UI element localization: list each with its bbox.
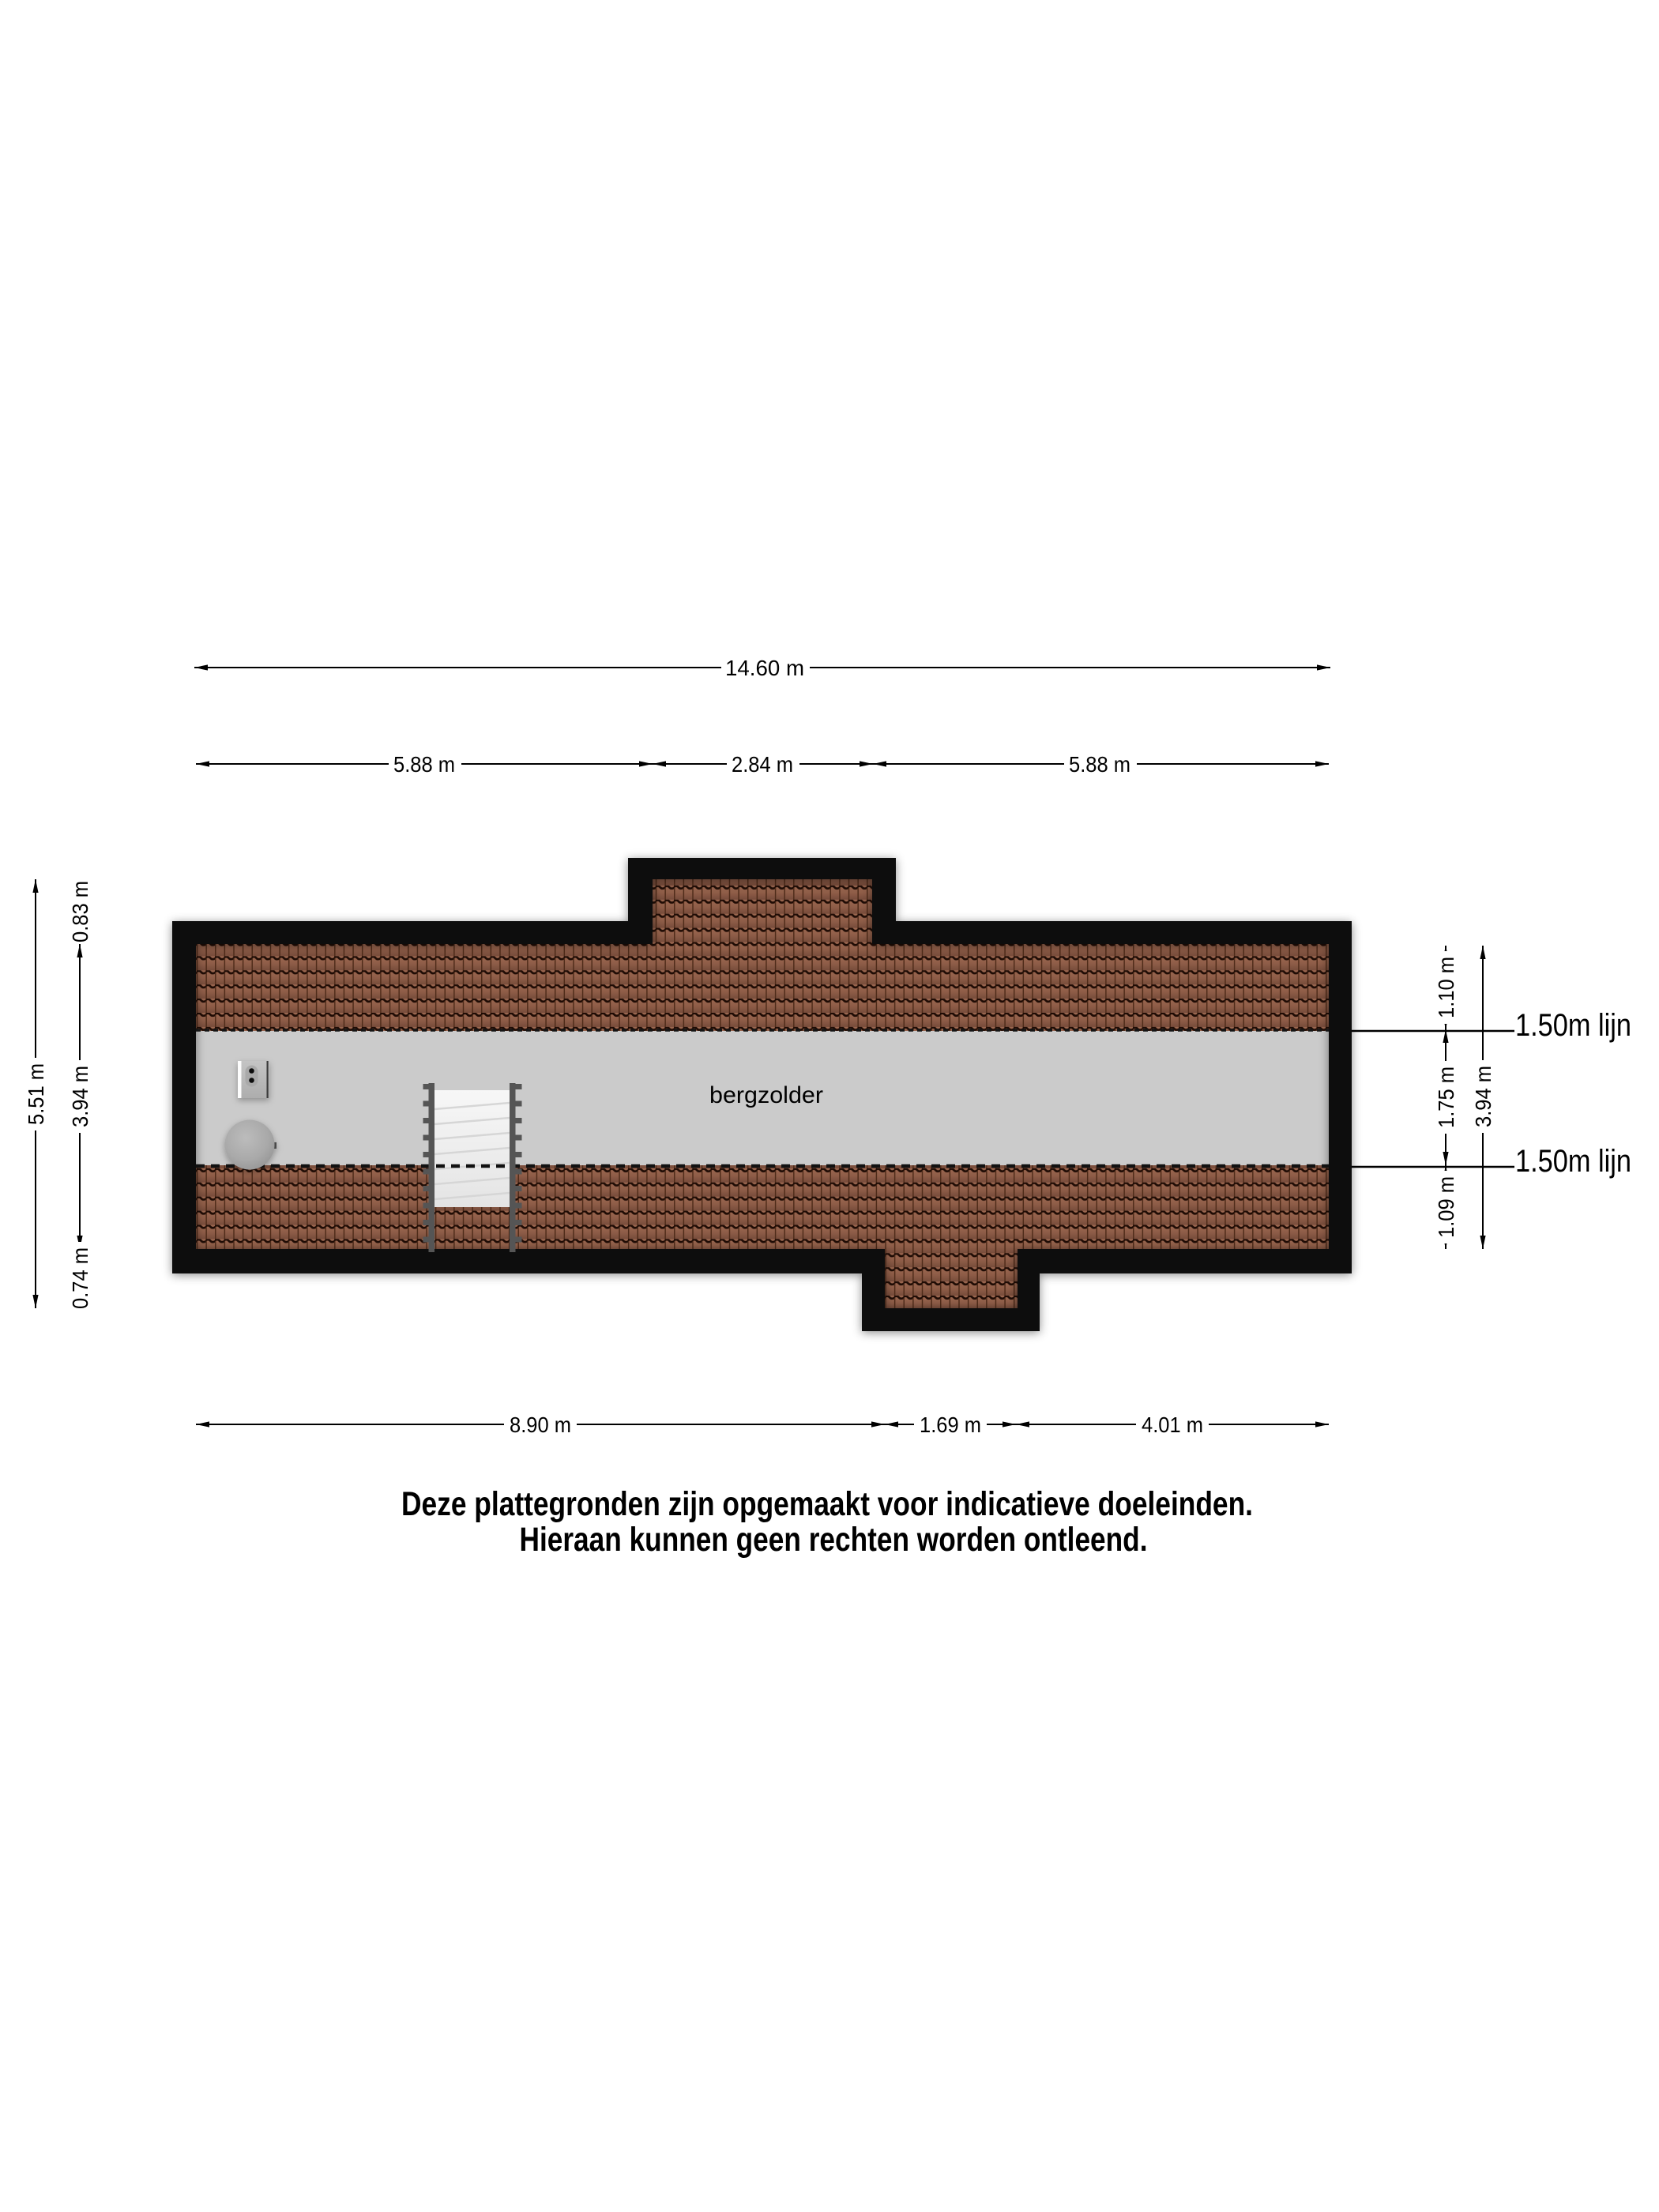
svg-text:1.09 m: 1.09 m — [1434, 1176, 1458, 1238]
svg-text:0.74 m: 0.74 m — [68, 1247, 92, 1309]
svg-text:bergzolder: bergzolder — [709, 1082, 823, 1108]
svg-text:5.88 m: 5.88 m — [1069, 752, 1130, 777]
svg-text:2.84 m: 2.84 m — [732, 752, 793, 777]
svg-text:5.51 m: 5.51 m — [24, 1063, 48, 1125]
svg-text:5.88 m: 5.88 m — [393, 752, 455, 777]
svg-text:1.10 m: 1.10 m — [1434, 957, 1458, 1018]
svg-text:0.83 m: 0.83 m — [68, 881, 92, 942]
svg-text:3.94 m: 3.94 m — [68, 1066, 92, 1127]
svg-text:8.90 m: 8.90 m — [510, 1413, 571, 1437]
svg-text:3.94 m: 3.94 m — [1471, 1066, 1495, 1127]
svg-text:1.50m lijn: 1.50m lijn — [1515, 1144, 1631, 1179]
svg-text:1.50m lijn: 1.50m lijn — [1515, 1008, 1631, 1043]
svg-text:1.75 m: 1.75 m — [1434, 1066, 1458, 1128]
svg-text:1.69 m: 1.69 m — [920, 1413, 981, 1437]
svg-text:14.60 m: 14.60 m — [725, 656, 804, 680]
svg-text:4.01 m: 4.01 m — [1142, 1413, 1203, 1437]
svg-text:Deze plattegronden zijn opgema: Deze plattegronden zijn opgemaakt voor i… — [401, 1485, 1253, 1523]
svg-text:Hieraan kunnen geen rechten wo: Hieraan kunnen geen rechten worden ontle… — [520, 1521, 1148, 1559]
